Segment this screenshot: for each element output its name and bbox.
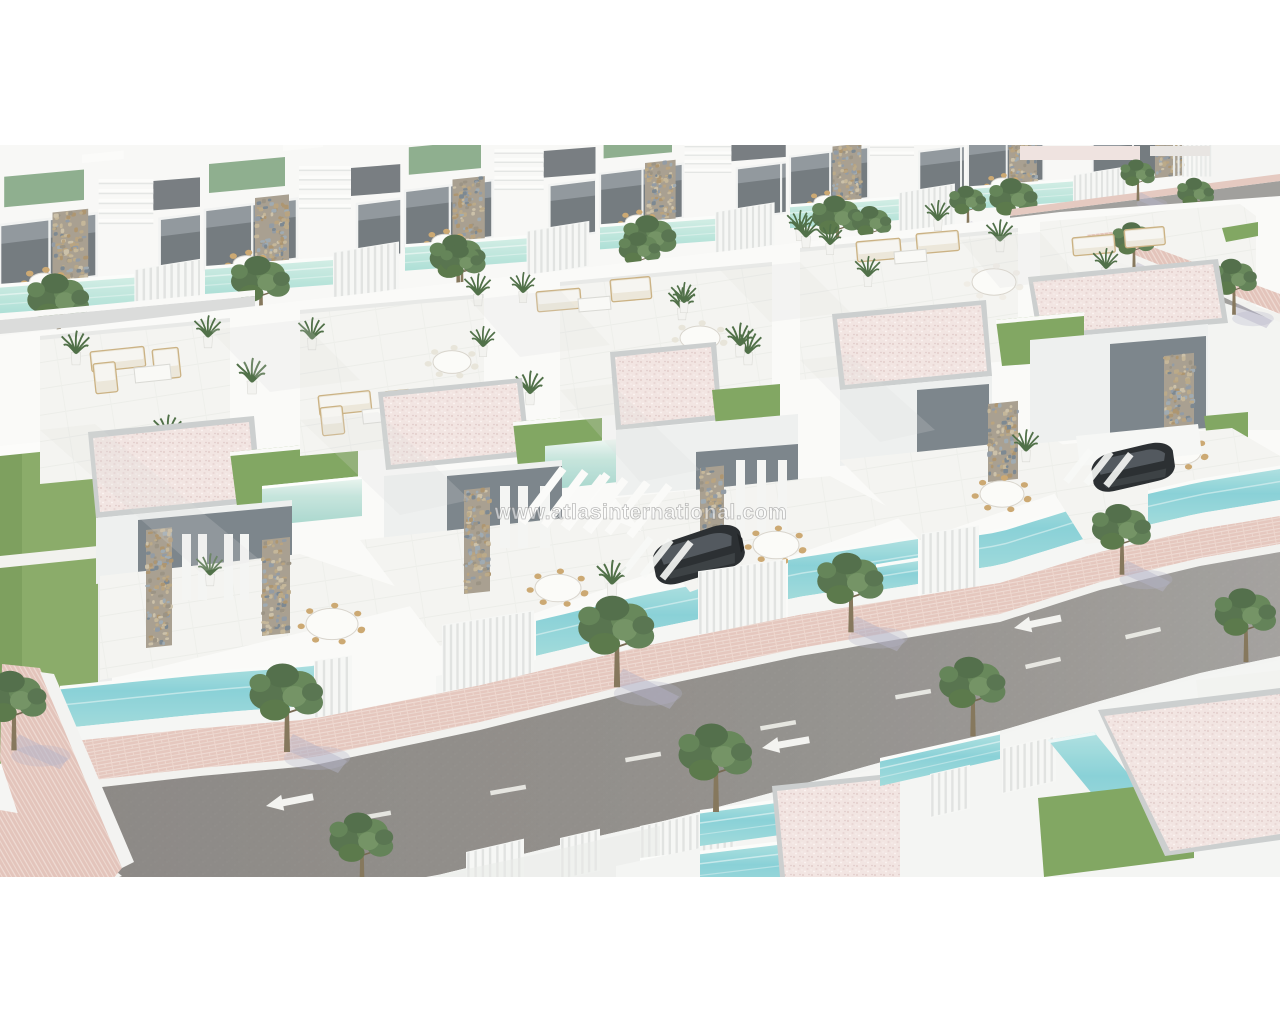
svg-text:www.atlasinternational.com: www.atlasinternational.com	[494, 501, 788, 524]
